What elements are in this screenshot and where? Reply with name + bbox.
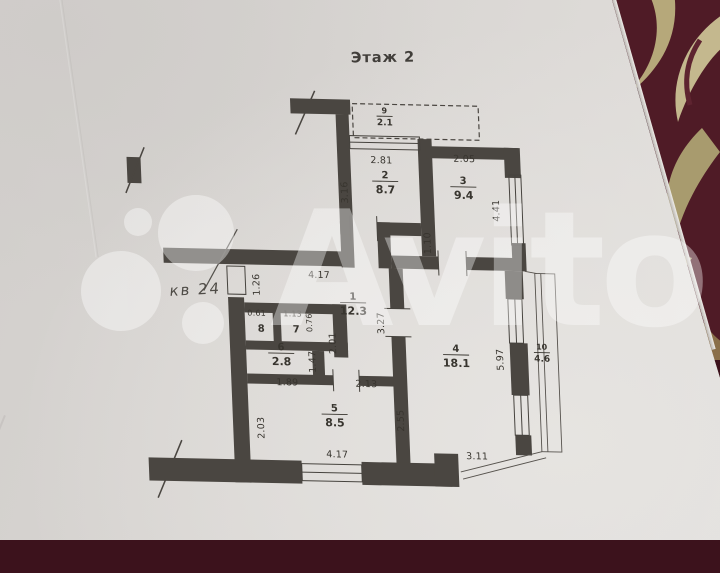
svg-text:10: 10 bbox=[536, 343, 548, 352]
dimension-label: 2.55 bbox=[395, 410, 407, 432]
svg-text:9: 9 bbox=[381, 106, 387, 115]
svg-text:8: 8 bbox=[258, 324, 265, 335]
room-label-3: 39.4 bbox=[450, 176, 477, 203]
svg-text:5: 5 bbox=[331, 403, 338, 414]
dimension-label: 1.13 bbox=[283, 309, 302, 318]
svg-text:4.6: 4.6 bbox=[534, 354, 550, 364]
svg-text:9.4: 9.4 bbox=[454, 189, 474, 202]
dimension-label: 1.10 bbox=[422, 232, 434, 254]
plan-title: Этаж 2 bbox=[318, 49, 448, 67]
room-label-4: 418.1 bbox=[442, 344, 470, 371]
dimension-label: 2.81 bbox=[370, 155, 392, 166]
room-label-5: 58.5 bbox=[321, 403, 348, 430]
dimension-label: 2.05 bbox=[453, 154, 475, 165]
dimension-label: 4.17 bbox=[308, 270, 330, 281]
balcony-outline bbox=[352, 104, 479, 141]
room-label-2: 28.7 bbox=[372, 170, 399, 197]
svg-text:12.3: 12.3 bbox=[340, 304, 368, 318]
dimension-label: 0.76 bbox=[305, 313, 315, 332]
dimension-label: 2.03 bbox=[256, 417, 268, 439]
photo-of-floor-plan: { "photo": { "title": "Этаж 2", "annotat… bbox=[0, 0, 720, 540]
floor-plan-svg: кв 24 92.128.739.4112.38762.858.5418.110… bbox=[132, 95, 568, 504]
dimension-label: 2.01 bbox=[327, 332, 339, 354]
svg-text:18.1: 18.1 bbox=[443, 357, 471, 371]
dimension-label: 1.26 bbox=[251, 274, 263, 296]
dimension-label: 2.13 bbox=[355, 379, 377, 390]
room-label-7: 7 bbox=[293, 324, 300, 335]
svg-text:3: 3 bbox=[459, 176, 466, 187]
room-label-9: 92.1 bbox=[376, 106, 393, 128]
svg-text:2.8: 2.8 bbox=[272, 355, 292, 368]
floor-plan: кв 24 92.128.739.4112.38762.858.5418.110… bbox=[132, 95, 568, 504]
dimension-label: 1.89 bbox=[276, 377, 298, 388]
svg-text:2.1: 2.1 bbox=[377, 118, 393, 128]
svg-text:8.7: 8.7 bbox=[376, 183, 396, 196]
dimension-label: 1.47 bbox=[307, 351, 319, 373]
room-label-10: 104.6 bbox=[534, 342, 551, 364]
room-label-8: 8 bbox=[258, 324, 265, 335]
paper-crease bbox=[58, 0, 99, 257]
dimension-label: 3.16 bbox=[339, 181, 351, 203]
dimension-label: 3.27 bbox=[375, 312, 387, 334]
svg-text:6: 6 bbox=[277, 342, 284, 353]
dimension-label: 3.11 bbox=[466, 451, 488, 462]
svg-text:4: 4 bbox=[452, 344, 459, 355]
room-label-1: 112.3 bbox=[339, 291, 367, 318]
apartment-number-note: кв 24 bbox=[168, 279, 221, 300]
svg-text:2: 2 bbox=[381, 170, 388, 181]
cut-ticks bbox=[122, 87, 331, 501]
dimension-label: 0.61 bbox=[247, 308, 266, 317]
dimension-label: 4.17 bbox=[326, 449, 348, 460]
paper-crease bbox=[0, 415, 6, 573]
svg-text:7: 7 bbox=[293, 324, 300, 335]
svg-text:8.5: 8.5 bbox=[325, 416, 345, 429]
dimension-label: 4.41 bbox=[491, 200, 503, 222]
svg-text:1: 1 bbox=[349, 292, 356, 303]
dimension-label: 5.97 bbox=[495, 349, 507, 371]
